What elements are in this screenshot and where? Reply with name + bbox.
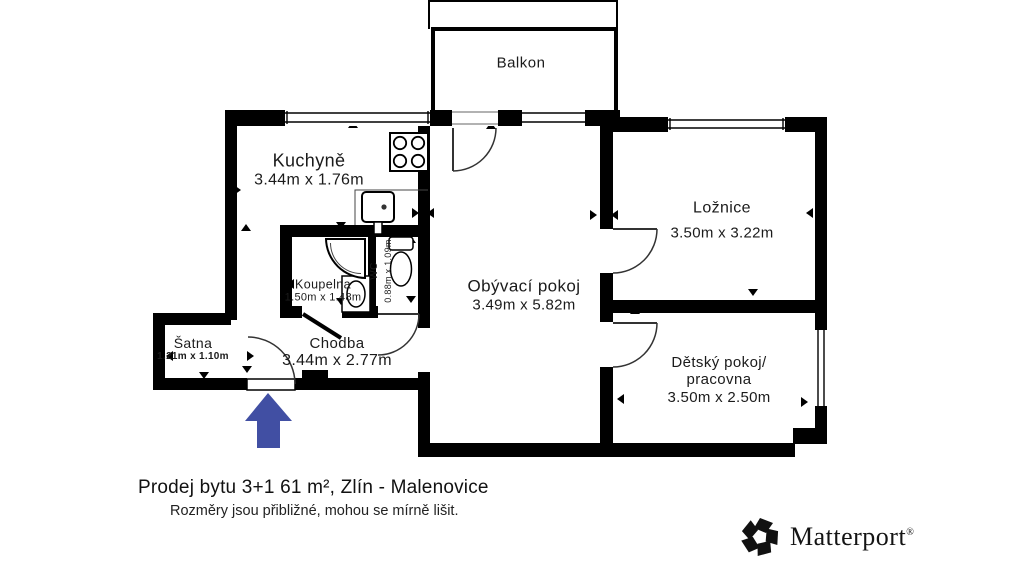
room-label-chodba: Chodba 3.44m x 2.77m xyxy=(282,335,392,371)
kids-room-window-icon xyxy=(815,330,827,406)
wall-segment xyxy=(600,367,613,443)
dimension-marker-icon xyxy=(486,122,496,129)
dimension-marker-icon xyxy=(336,222,346,229)
dimension-marker-icon xyxy=(348,121,358,128)
shower-icon xyxy=(325,238,366,279)
entrance-arrow-icon xyxy=(245,393,292,448)
dimension-marker-icon xyxy=(617,394,624,404)
room-name: Kuchyně xyxy=(254,150,364,171)
room-dims: 3.44m x 2.77m xyxy=(282,352,392,370)
dimension-marker-icon xyxy=(234,185,241,195)
room-name: pracovna xyxy=(667,371,770,388)
room-name: Obývací pokoj xyxy=(468,277,581,297)
balcony-door-icon xyxy=(453,128,496,171)
room-name: Chodba xyxy=(282,335,392,352)
room-name: Dětský pokoj/ xyxy=(667,354,770,371)
room-dims: 3.44m x 1.76m xyxy=(254,171,364,189)
room-label-satna: Šatna 1.21m x 1.10m xyxy=(157,335,229,363)
dimension-marker-icon xyxy=(748,289,758,296)
wall-segment xyxy=(430,110,452,126)
dimension-marker-icon xyxy=(801,397,808,407)
wall-segment xyxy=(418,443,795,457)
room-name: Ložnice xyxy=(670,200,773,218)
bedroom-door-icon xyxy=(613,229,657,273)
matterport-wordmark: Matterport® xyxy=(790,522,914,552)
building-outline xyxy=(429,1,617,29)
dimension-marker-icon xyxy=(632,449,642,456)
wall-segment xyxy=(295,378,428,390)
room-label-detsky: Dětský pokoj/ pracovna 3.50m x 2.50m xyxy=(667,354,770,406)
dimension-marker-icon xyxy=(590,210,597,220)
dimension-marker-icon xyxy=(806,208,813,218)
dimension-marker-icon xyxy=(486,448,496,455)
room-label-loznice: Ložnice 3.50m x 3.22m xyxy=(670,200,773,243)
kids-room-door-icon xyxy=(613,323,657,367)
floor-plan-canvas: Balkon Kuchyně 3.44m x 1.76m Obývací pok… xyxy=(0,0,1024,576)
room-dims: 3.49m x 5.82m xyxy=(468,296,581,313)
dimension-marker-icon xyxy=(406,296,416,303)
dimension-marker-icon xyxy=(199,313,209,320)
room-name: WC xyxy=(367,239,382,302)
room-dims: 3.50m x 2.50m xyxy=(667,389,770,406)
listing-disclaimer: Rozměry jsou přibližné, mohou se mírně l… xyxy=(170,503,459,519)
wall-segment xyxy=(600,273,613,322)
wall-segment xyxy=(418,110,430,328)
listing-title: Prodej bytu 3+1 61 m², Zlín - Malenovice xyxy=(138,477,489,499)
wall-segment xyxy=(302,370,328,378)
room-label-obyvaci: Obývací pokoj 3.49m x 5.82m xyxy=(468,277,581,314)
dimension-marker-icon xyxy=(412,208,419,218)
room-label-koupelna: Koupelna 1.50m x 1.48m xyxy=(285,277,362,304)
room-dims: 1.21m x 1.10m xyxy=(157,351,229,363)
dimension-marker-icon xyxy=(241,224,251,231)
matterport-logo-icon xyxy=(738,515,782,559)
dimension-marker-icon xyxy=(247,351,254,361)
living-room-window-icon xyxy=(522,110,585,126)
wall-segment xyxy=(225,110,237,320)
wall-segment xyxy=(280,306,302,318)
room-label-balkon: Balkon xyxy=(497,54,546,71)
dimension-marker-icon xyxy=(406,236,416,243)
dimension-marker-icon xyxy=(748,122,758,129)
room-label-wc: WC 0.88m x 1.09m xyxy=(367,239,396,302)
matterport-brand: Matterport® xyxy=(738,515,914,559)
wall-segment xyxy=(153,378,247,390)
dimension-marker-icon xyxy=(242,366,252,373)
room-name: Koupelna xyxy=(285,277,362,291)
room-dims: 0.88m x 1.09m xyxy=(382,239,396,302)
room-label-kuchyne: Kuchyně 3.44m x 1.76m xyxy=(254,150,364,189)
wall-segment xyxy=(793,428,827,444)
wall-segment xyxy=(613,117,670,132)
wall-segment xyxy=(498,110,522,126)
room-dims: 3.50m x 3.22m xyxy=(670,225,773,242)
wall-segment xyxy=(783,117,827,132)
room-dims: 1.50m x 1.48m xyxy=(285,292,362,305)
wall-segment xyxy=(815,406,827,430)
dimension-marker-icon xyxy=(199,372,209,379)
room-name: Šatna xyxy=(157,335,229,351)
dimension-marker-icon xyxy=(611,210,618,220)
bedroom-window-icon xyxy=(668,117,785,132)
dimension-marker-icon xyxy=(427,208,434,218)
dimension-marker-icon xyxy=(630,307,640,314)
